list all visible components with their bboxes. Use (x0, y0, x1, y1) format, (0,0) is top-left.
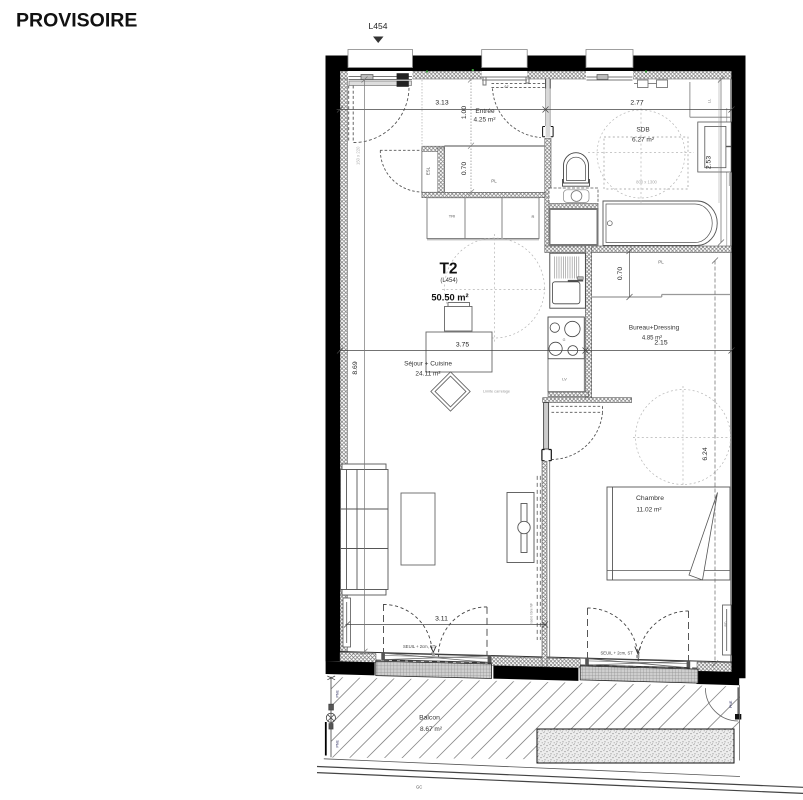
svg-text:(L454): (L454) (440, 278, 457, 284)
svg-text:PNE: PNE (729, 700, 733, 708)
svg-text:SDB: SDB (636, 127, 649, 134)
svg-text:0.70: 0.70 (617, 267, 624, 280)
svg-text:L454: L454 (369, 21, 388, 31)
svg-text:TRI: TRI (449, 214, 455, 219)
svg-text:Bureau+Dressing: Bureau+Dressing (629, 325, 680, 332)
svg-text:R: R (532, 214, 535, 219)
svg-text:G: G (563, 338, 566, 342)
svg-text:T2: T2 (439, 261, 457, 278)
svg-text:LV: LV (562, 377, 567, 382)
svg-text:3.11: 3.11 (435, 616, 448, 623)
svg-text:PL: PL (658, 260, 664, 265)
svg-text:4.25 m²: 4.25 m² (473, 117, 496, 124)
svg-text:Chambre: Chambre (636, 495, 664, 502)
svg-text:50.50 m²: 50.50 m² (431, 293, 468, 303)
svg-text:8.67 m²: 8.67 m² (420, 726, 443, 733)
svg-text:0.70: 0.70 (461, 162, 468, 175)
svg-text:2.53: 2.53 (706, 156, 713, 169)
svg-text:LL: LL (707, 98, 712, 103)
svg-text:ESL: ESL (426, 166, 431, 175)
svg-text:Balcon: Balcon (419, 715, 440, 722)
svg-text:PNE: PNE (336, 740, 340, 748)
svg-text:24.11 m²: 24.11 m² (415, 371, 441, 378)
svg-text:RD: RD (724, 621, 728, 626)
svg-text:11.02 m²: 11.02 m² (636, 507, 662, 514)
svg-text:PL: PL (491, 179, 497, 184)
svg-text:6.27 m²: 6.27 m² (632, 137, 655, 144)
svg-text:Limite carrelage: Limite carrelage (483, 390, 510, 394)
svg-text:Inséré libre NF: Inséré libre NF (530, 603, 534, 625)
svg-text:8.69: 8.69 (352, 361, 359, 374)
svg-text:SEUIL + 2cm, ST: SEUIL + 2cm, ST (601, 651, 634, 656)
svg-text:150 x 220: 150 x 220 (356, 146, 361, 165)
svg-text:4.85 m²: 4.85 m² (642, 336, 662, 342)
svg-text:1.00: 1.00 (461, 106, 468, 119)
svg-text:PNE: PNE (336, 690, 340, 698)
svg-text:Séjour + Cuisine: Séjour + Cuisine (404, 361, 452, 368)
svg-text:800 x 1300: 800 x 1300 (636, 180, 657, 185)
svg-text:GC: GC (416, 785, 422, 790)
svg-text:AF: AF (504, 84, 510, 89)
svg-text:2.77: 2.77 (630, 100, 643, 107)
svg-text:6.24: 6.24 (702, 447, 709, 460)
svg-text:3.13: 3.13 (435, 100, 448, 107)
svg-text:PROVISOIRE: PROVISOIRE (16, 10, 137, 32)
svg-text:Entrée: Entrée (475, 108, 495, 115)
svg-text:3.75: 3.75 (456, 342, 469, 349)
